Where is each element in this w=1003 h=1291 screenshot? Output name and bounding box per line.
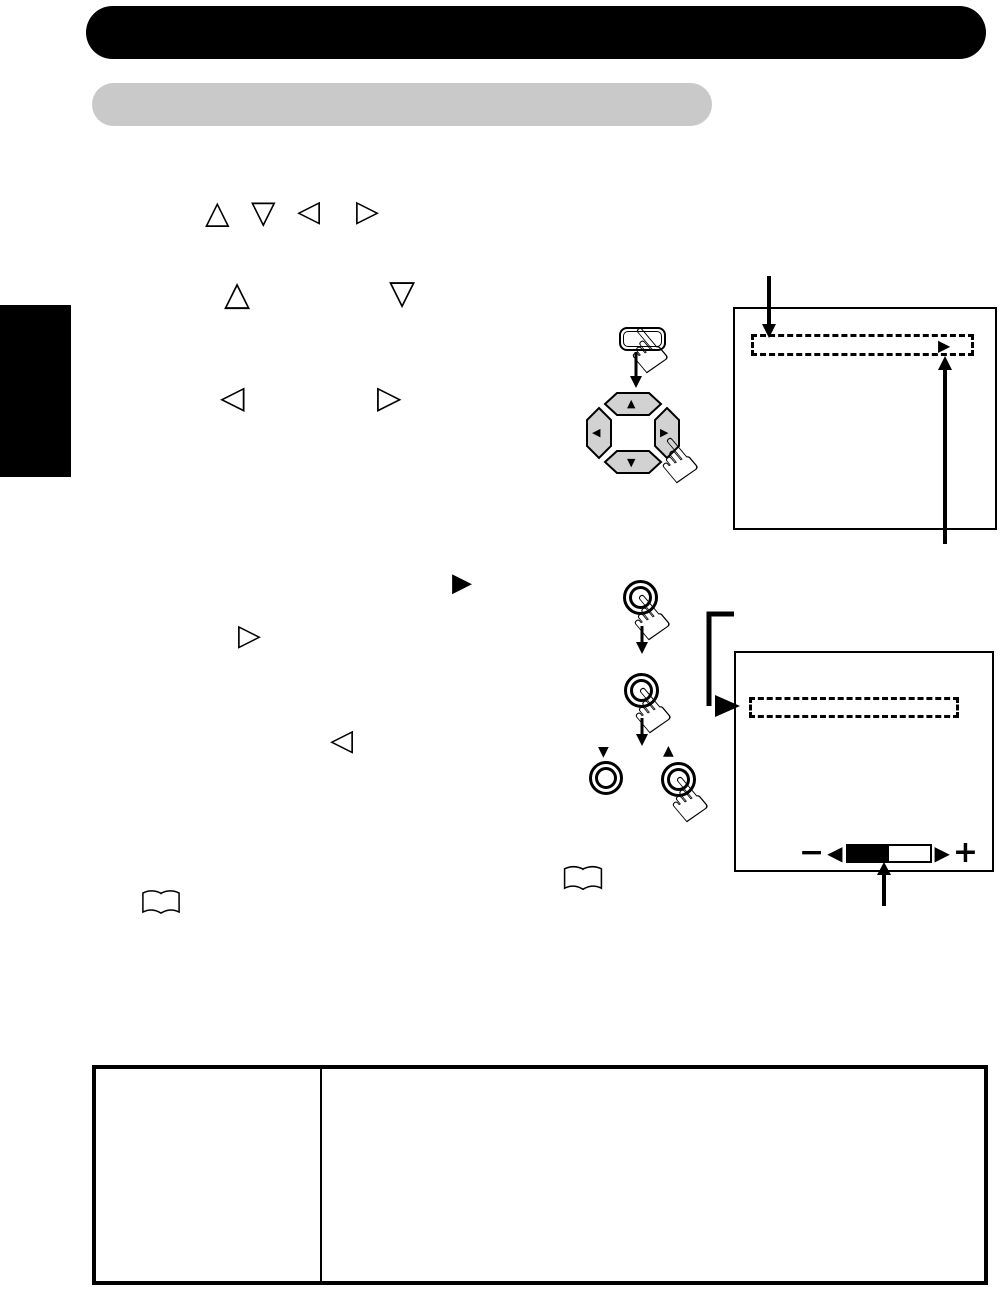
right-key-icon: ▷ <box>377 381 402 413</box>
book-icon <box>141 888 181 919</box>
plus-sign: + <box>953 838 978 868</box>
left-key-icon: ◁ <box>220 381 245 413</box>
screen-display-1: ▶ <box>733 307 997 530</box>
select-arrow-icon: ▶ <box>452 570 472 596</box>
note-table-body-cell <box>322 1069 984 1281</box>
page-title-bar <box>86 6 986 59</box>
section-title-bar <box>92 83 712 126</box>
slider-fill <box>848 846 889 861</box>
right-key-icon: ▷ <box>238 621 261 651</box>
slider-decrease-arrow-icon: ◀ <box>827 843 842 863</box>
flow-down-arrow-icon <box>634 718 650 746</box>
callout-up-arrow-icon <box>937 356 953 544</box>
slider-increase-arrow-icon: ▶ <box>935 843 950 863</box>
callout-up-arrow-icon <box>876 862 892 906</box>
note-table-heading-cell <box>96 1069 322 1281</box>
up-key-icon: △ <box>224 277 250 311</box>
left-key-icon: ◁ <box>297 197 320 227</box>
left-key-icon: ◁ <box>330 726 353 756</box>
pointing-hand-icon: ☝ <box>653 766 717 833</box>
dpad-left-arrow-icon: ◀ <box>592 427 600 438</box>
flow-down-arrow-icon <box>628 352 644 388</box>
book-icon <box>562 864 604 895</box>
right-key-icon: ▷ <box>356 197 379 227</box>
minus-sign: − <box>799 838 824 868</box>
flow-down-arrow-icon <box>634 626 650 654</box>
callout-bracket-arrow-icon <box>703 609 745 721</box>
pointing-hand-icon: ☝ <box>643 427 707 494</box>
down-key-icon: ▽ <box>251 196 276 228</box>
round-button-illustration <box>589 761 623 795</box>
slider-bar <box>846 844 932 863</box>
pointing-hand-icon: ☝ <box>613 317 677 384</box>
cursor-arrow-icon: ▶ <box>938 338 950 354</box>
callout-down-arrow-icon <box>761 276 777 338</box>
manual-page: △ ▽ ◁ ▷ △ ▽ ◁ ▷ ☝ ▲ ▼ ◀ ▶ ☝ ▶ ▶ ▷ ◁ ☝ <box>0 0 1003 1291</box>
note-table <box>92 1065 988 1285</box>
dpad-up-arrow-icon: ▲ <box>627 398 635 409</box>
up-key-icon: △ <box>205 196 230 228</box>
menu-highlight-row <box>749 697 959 718</box>
decrease-marker-icon: ▼ <box>598 745 609 759</box>
chapter-side-tab <box>0 305 71 477</box>
dpad-down-arrow-icon: ▼ <box>627 457 635 468</box>
increase-marker-icon: ▲ <box>663 744 674 758</box>
down-key-icon: ▽ <box>389 276 415 310</box>
